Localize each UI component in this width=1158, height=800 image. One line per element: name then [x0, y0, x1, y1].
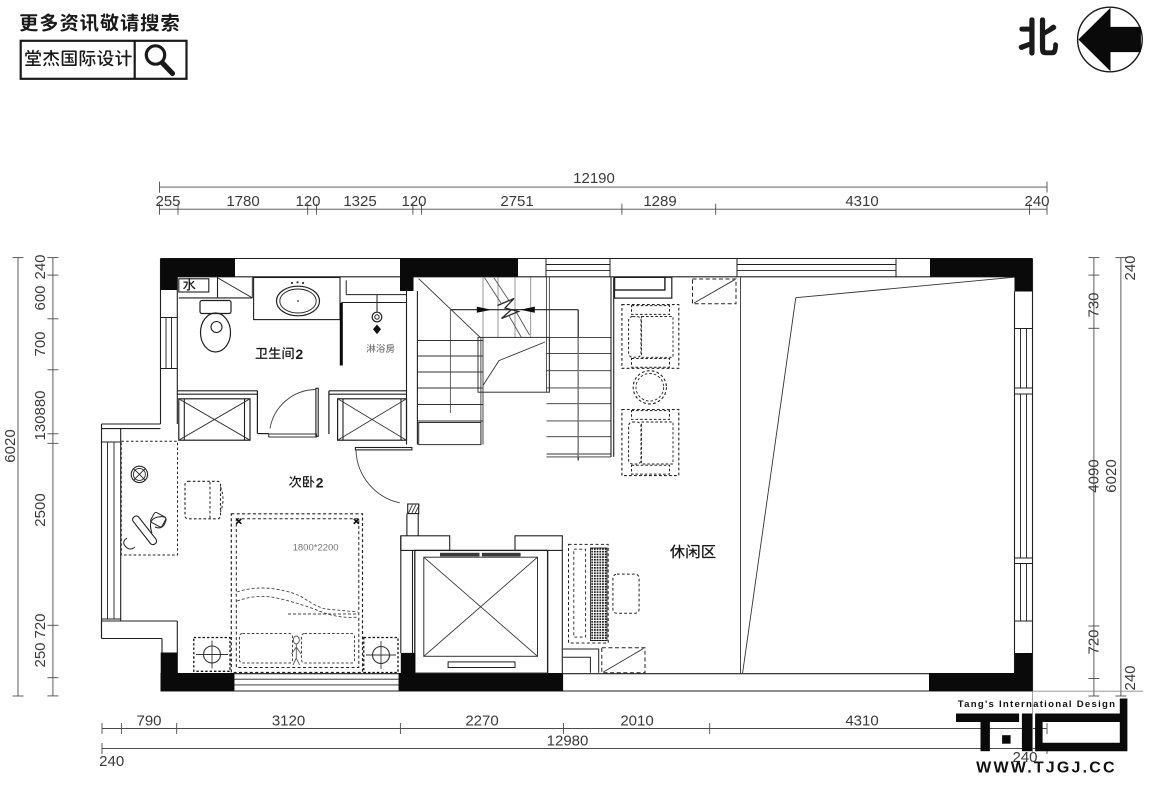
svg-text:250: 250 [32, 642, 49, 667]
svg-text:120: 120 [295, 193, 320, 210]
svg-text:720: 720 [32, 613, 49, 638]
svg-text:4310: 4310 [845, 713, 878, 730]
svg-text:WWW.TJGJ.CC: WWW.TJGJ.CC [976, 760, 1117, 777]
svg-text:240: 240 [1024, 193, 1049, 210]
svg-text:2751: 2751 [500, 193, 533, 210]
svg-text:1325: 1325 [343, 193, 376, 210]
svg-text:240: 240 [1122, 255, 1139, 280]
svg-text:12190: 12190 [573, 170, 615, 187]
svg-text:2: 2 [296, 347, 304, 362]
svg-text:1780: 1780 [226, 193, 259, 210]
svg-text:3120: 3120 [272, 713, 305, 730]
svg-text:240: 240 [32, 254, 49, 279]
svg-text:730: 730 [1085, 292, 1102, 317]
svg-text:2500: 2500 [32, 493, 49, 526]
svg-text:130: 130 [32, 415, 49, 440]
svg-text:6020: 6020 [1103, 459, 1120, 492]
svg-text:Tang's International Design: Tang's International Design [958, 699, 1116, 710]
svg-text:255: 255 [155, 193, 180, 210]
svg-text:880: 880 [32, 390, 49, 415]
svg-text:600: 600 [32, 285, 49, 310]
svg-text:240: 240 [99, 753, 124, 770]
svg-text:2010: 2010 [620, 713, 653, 730]
svg-text:1289: 1289 [643, 193, 676, 210]
svg-text:4310: 4310 [845, 193, 878, 210]
svg-text:790: 790 [136, 713, 161, 730]
svg-text:120: 120 [401, 193, 426, 210]
svg-text:12980: 12980 [547, 733, 589, 750]
svg-text:240: 240 [1122, 665, 1139, 690]
svg-text:6020: 6020 [2, 429, 19, 462]
svg-text:2270: 2270 [465, 713, 498, 730]
svg-text:2: 2 [316, 476, 324, 491]
svg-text:720: 720 [1085, 629, 1102, 654]
svg-text:4090: 4090 [1085, 459, 1102, 492]
svg-text:700: 700 [32, 331, 49, 356]
svg-text:1800*2200: 1800*2200 [293, 543, 339, 554]
